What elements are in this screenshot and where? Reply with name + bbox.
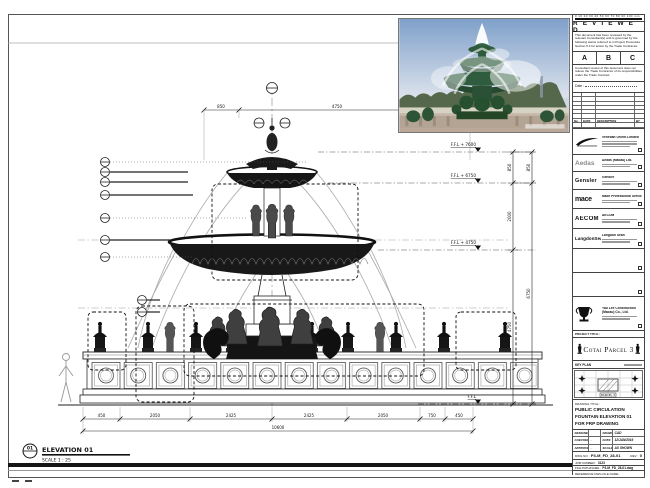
dwg-number-row: DWG NO : P3-M_FD_28-01 REV : 0 xyxy=(573,452,644,460)
company-checkbox xyxy=(638,222,642,226)
reference-photo xyxy=(398,18,570,133)
company-box-aedas: Aedas Aedas (Macau) Ltd. xyxy=(573,155,644,172)
svg-text:2000: 2000 xyxy=(507,211,512,222)
job-number-value: 3123 xyxy=(598,461,605,465)
project-ornament-icon xyxy=(576,341,583,357)
dwg-no-label: DWG NO : xyxy=(575,454,589,458)
svg-text:01: 01 xyxy=(27,446,33,452)
project-title-row: Cotai Parcel 3 xyxy=(573,338,644,361)
upper-basin xyxy=(227,118,317,188)
scale-bar: 0 10 20 30 40 50 60 70 80 90 100 mm xyxy=(573,15,644,22)
company-name: Gensler xyxy=(602,176,642,180)
drawing-title-box: DRAWING TITLE : PUBLIC CIRCULATION FOUNT… xyxy=(573,400,644,430)
svg-text:750: 750 xyxy=(428,413,436,418)
project-ornament-icon xyxy=(634,341,641,357)
key-plan-label: KEY PLAN xyxy=(575,363,591,367)
mace-logo: mace xyxy=(575,196,601,203)
svg-text:2050: 2050 xyxy=(150,413,161,418)
date-blank-line xyxy=(585,84,637,87)
file-path-label: FILE PATH/NAME : xyxy=(575,466,601,470)
svg-text:4750: 4750 xyxy=(507,321,512,332)
yau-lee-cup-logo xyxy=(575,304,601,324)
svg-text:SCALE 1 : 25: SCALE 1 : 25 xyxy=(42,458,71,464)
company-box-gensler: Gensler Gensler xyxy=(573,172,644,190)
key-plan-strip: KEY PLAN xyxy=(573,361,644,369)
svg-text:F.F.L + 6750: F.F.L + 6750 xyxy=(451,173,477,178)
company-name: Aedas (Macau) Ltd. xyxy=(602,159,642,163)
project-title: Cotai Parcel 3 xyxy=(583,345,633,354)
revision-table: No. DATE DESCRIPTION BY xyxy=(573,93,644,129)
reference-dwg-label: REFERENCE DWG FILE NAME : xyxy=(575,472,620,476)
status-b: B xyxy=(597,52,621,64)
svg-text:6750: 6750 xyxy=(526,288,531,299)
credits-table: DESIGNED DRAWNCAD CHECKED- DATE12/JAN/20… xyxy=(573,430,644,452)
title-block: 0 10 20 30 40 50 60 70 80 90 100 mm R E … xyxy=(572,14,645,475)
sheet-border-bottom xyxy=(8,477,645,478)
company-box-empty-2 xyxy=(573,273,644,297)
svg-text:F.F.L: F.F.L xyxy=(468,394,477,399)
project-title-label: PROJECT TITLE : xyxy=(573,331,644,338)
svg-text:10600: 10600 xyxy=(272,425,285,430)
svg-text:850: 850 xyxy=(526,163,531,171)
company-box-mace: mace Mace Professional Services Ltd. xyxy=(573,190,644,209)
company-box-aecom: AECOM AECOM xyxy=(573,209,644,229)
svg-text:F.F.L + 7600: F.F.L + 7600 xyxy=(451,142,477,147)
bottom-dimension-chains: 450 2050 2425 2425 2050 750 450 10600 xyxy=(81,407,476,434)
review-stamp-para1: This document has been reviewed by the r… xyxy=(573,32,644,52)
job-number-label: JOB NUMBER : xyxy=(575,461,596,465)
review-date-row: Date : xyxy=(573,82,644,90)
human-scale-figure xyxy=(59,354,73,403)
upper-statue-tier xyxy=(250,188,294,238)
drawing-title-line3: FOR FRP DRAWING xyxy=(575,421,642,428)
reference-dwg-row: REFERENCE DWG FILE NAME : xyxy=(573,471,644,476)
contractor-name: Yau Lee Construction (Macau) Co., Ltd. xyxy=(602,307,642,315)
contractor-checkbox xyxy=(638,324,642,328)
aedas-logo: Aedas xyxy=(575,160,601,167)
sheet-corner-marks xyxy=(12,480,32,482)
sheet-bottom-thin-line xyxy=(8,470,572,471)
langdon-seah-logo: LangdonSeah xyxy=(575,236,601,241)
status-a: A xyxy=(573,52,597,64)
svg-text:850: 850 xyxy=(217,104,225,109)
company-name: Langdon Seah xyxy=(602,234,642,238)
company-checkbox xyxy=(638,290,642,294)
photo-watermark xyxy=(525,124,564,128)
rev-value: 0 xyxy=(640,453,642,458)
scale-bar-cells xyxy=(575,18,642,21)
svg-text:2425: 2425 xyxy=(226,413,237,418)
svg-text:450: 450 xyxy=(455,413,463,418)
svg-text:4750: 4750 xyxy=(332,104,343,109)
rev-label: REV : xyxy=(630,454,638,458)
review-stamp: R E V I E W E D This document has been r… xyxy=(573,22,644,93)
status-c: C xyxy=(621,52,644,64)
gensler-logo: Gensler xyxy=(575,178,601,184)
dwg-no-value: P3-M_FD_28-01 xyxy=(591,453,621,458)
company-name: AECOM xyxy=(602,214,642,218)
svg-text:450: 450 xyxy=(98,413,106,418)
company-checkbox xyxy=(638,202,642,206)
company-box-venetian: Venetian Orient Limited xyxy=(573,129,644,155)
date-label: Date : xyxy=(575,84,584,88)
contractor-box: Yau Lee Construction (Macau) Co., Ltd. xyxy=(573,297,644,331)
drawing-title-line2: FOUNTAIN ELEVATION 01 xyxy=(575,414,642,421)
svg-text:ELEVATION 01: ELEVATION 01 xyxy=(42,446,94,454)
review-stamp-para2: Consultant review of this document does … xyxy=(573,65,644,82)
central-statue-group xyxy=(203,296,341,359)
company-name: Venetian Orient Limited xyxy=(602,136,642,140)
company-checkbox xyxy=(638,148,642,152)
company-checkbox xyxy=(638,242,642,246)
drawing-title-line1: PUBLIC CIRCULATION xyxy=(575,407,642,414)
key-plan-note xyxy=(624,364,642,365)
key-plan-map: PARCEL 3 xyxy=(573,369,644,400)
file-path-value: P3-M_FD_28-01.dwg xyxy=(602,466,633,470)
svg-text:F.F.L + 4750: F.F.L + 4750 xyxy=(451,240,477,245)
key-plan-parcel-label: PARCEL 3 xyxy=(601,393,615,397)
sheet-bottom-thick-band xyxy=(8,463,572,467)
company-checkbox xyxy=(638,165,642,169)
svg-text:2050: 2050 xyxy=(378,413,389,418)
review-stamp-title: R E V I E W E D xyxy=(573,22,644,32)
elevation-title: 01 ELEVATION 01 SCALE 1 : 25 xyxy=(23,444,130,463)
fountain-photo-graphic xyxy=(399,19,569,132)
aecom-logo: AECOM xyxy=(575,216,601,222)
review-status-row: A B C xyxy=(573,52,644,65)
svg-text:850: 850 xyxy=(507,163,512,171)
svg-text:2425: 2425 xyxy=(304,413,315,418)
drawing-title-label: DRAWING TITLE : xyxy=(575,402,642,406)
company-box-empty-1 xyxy=(573,249,644,273)
company-checkbox xyxy=(638,183,642,187)
venetian-swoosh-logo xyxy=(575,136,601,147)
company-checkbox xyxy=(638,266,642,270)
company-name: Mace Professional Services Ltd. xyxy=(602,195,642,199)
company-box-langdon-seah: LangdonSeah Langdon Seah xyxy=(573,229,644,249)
